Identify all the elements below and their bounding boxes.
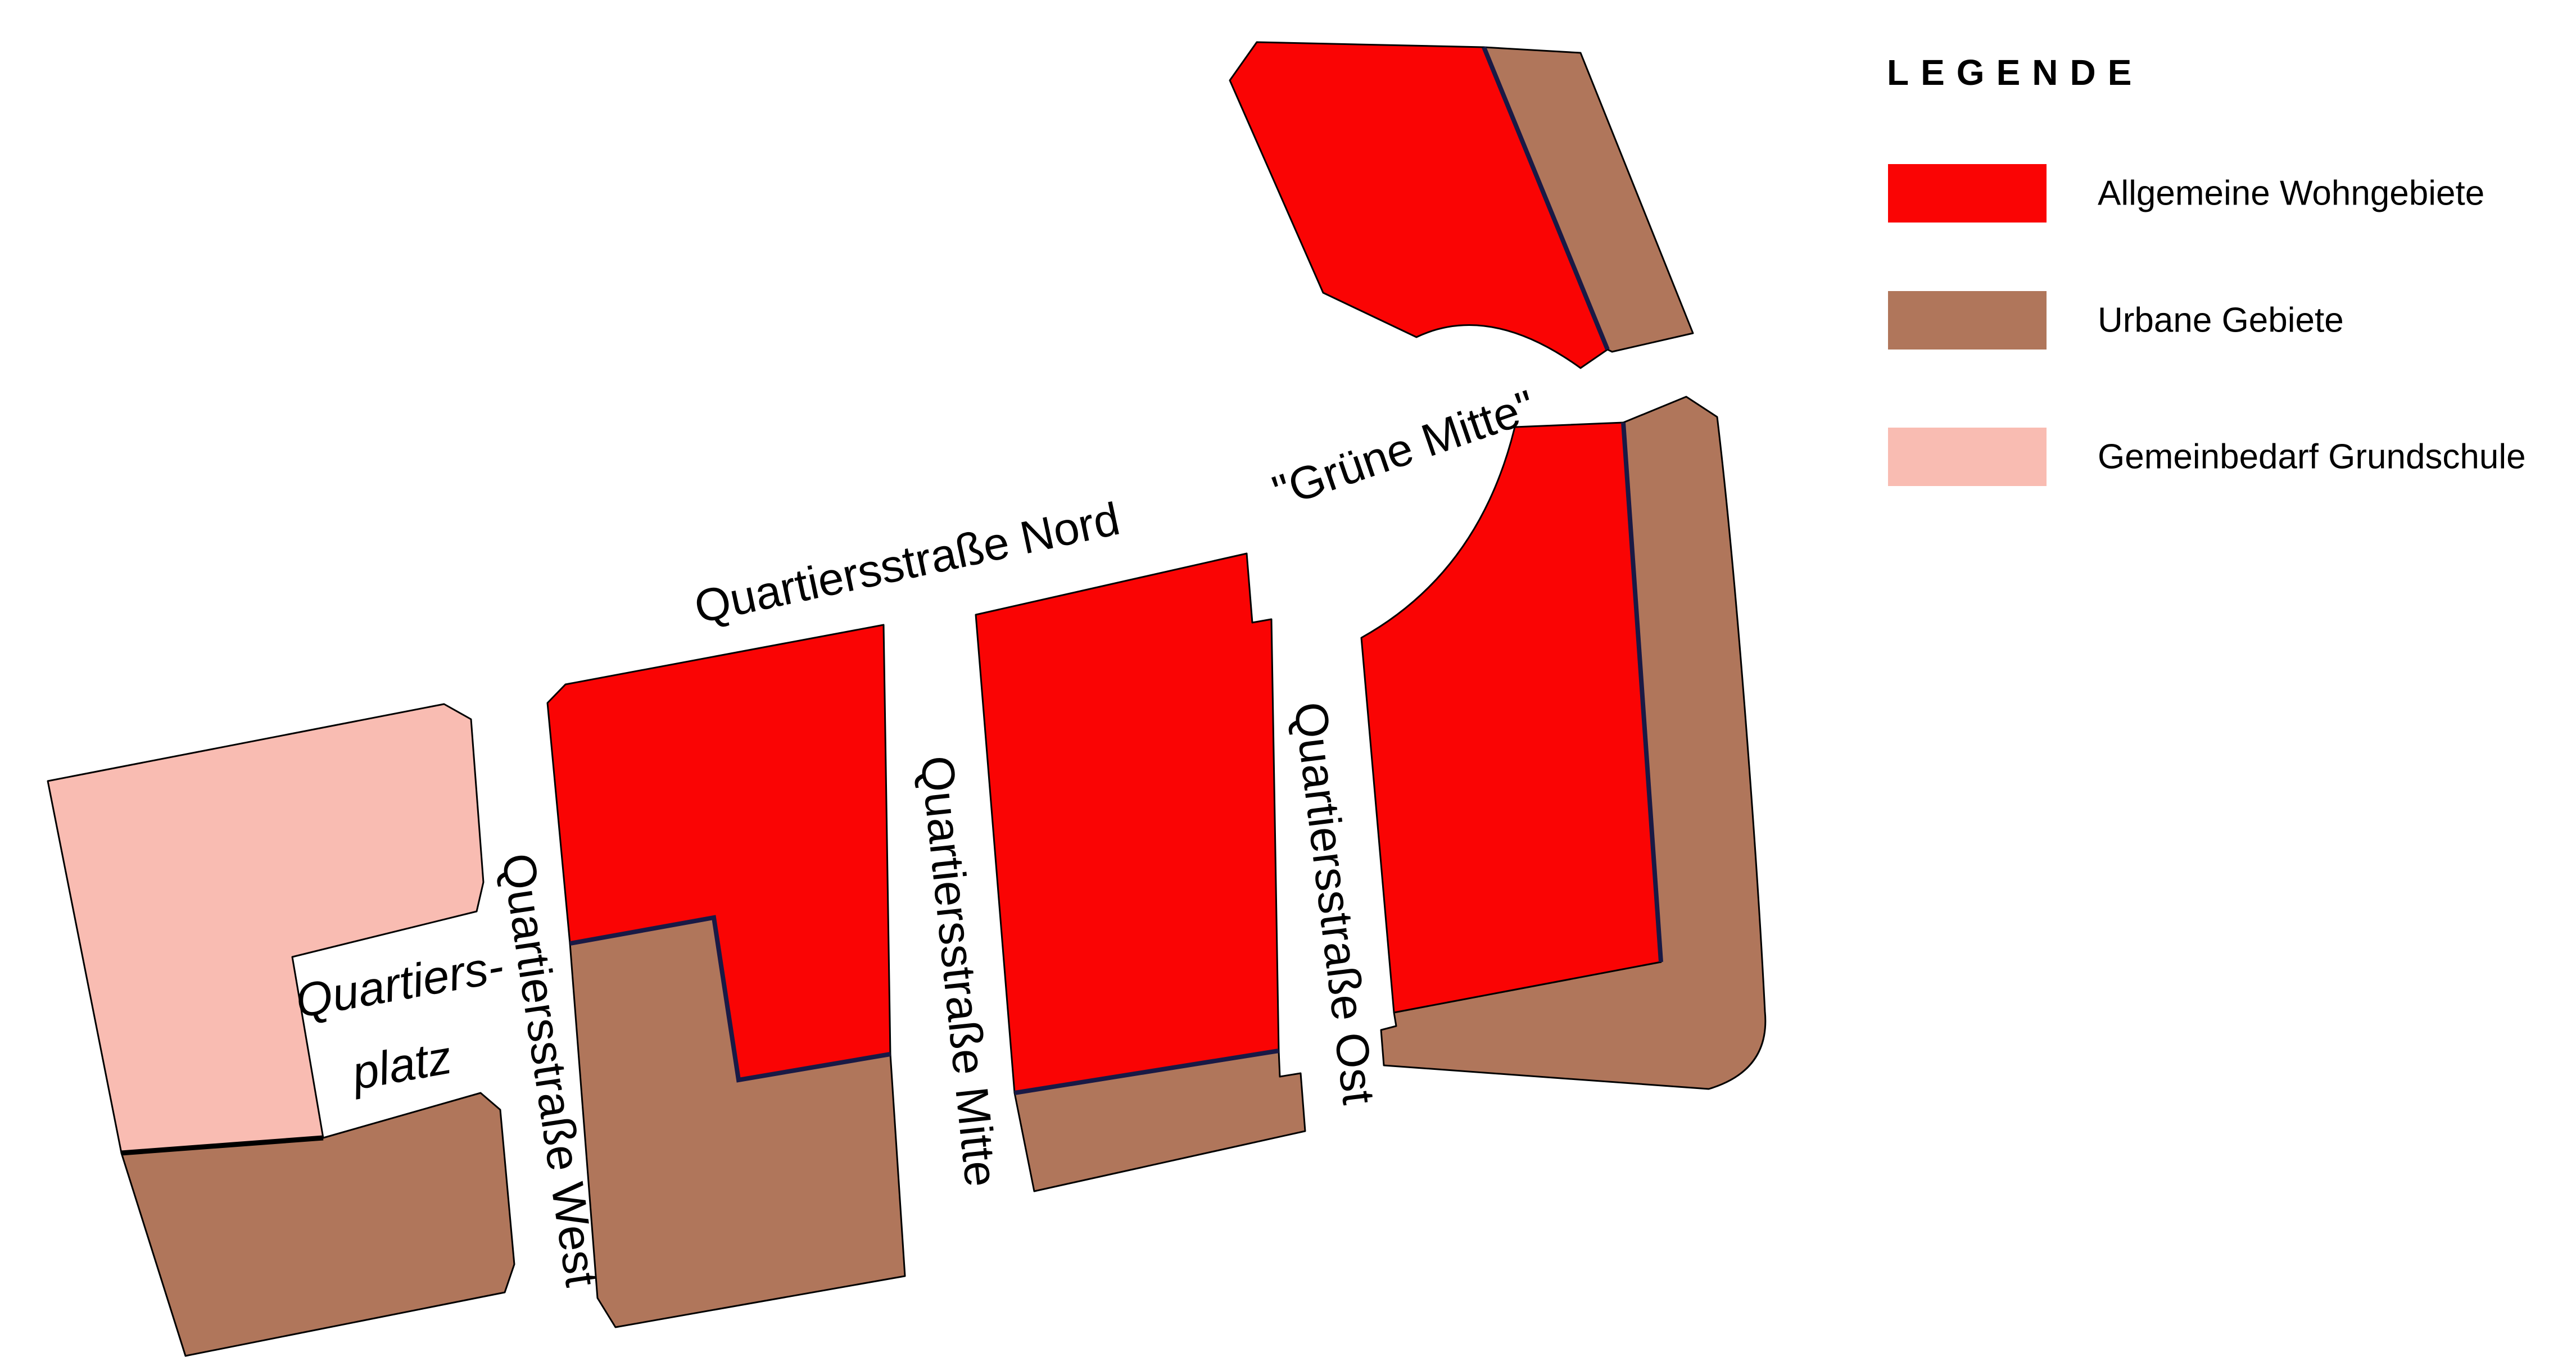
legend-title: LEGENDE [1887, 52, 2561, 93]
legend-item-label: Allgemeine Wohngebiete [2098, 174, 2484, 214]
legend-item-label: Urbane Gebiete [2098, 301, 2344, 341]
residential-swatch [1888, 164, 2047, 223]
place-label-quartiersplatz-line2: platz [346, 1031, 455, 1100]
residential-area-east [1361, 423, 1661, 1013]
school-swatch [1888, 428, 2047, 486]
plan-map: Quartiersstraße Nord Quartiersstraße Wes… [0, 0, 2576, 1357]
legend-item-label: Gemeinbedarf Grundschule [2098, 437, 2526, 477]
place-label-quartiersplatz-line1: Quartiers- [292, 940, 508, 1028]
urban-swatch [1888, 291, 2047, 350]
street-label-ost: Quartiersstraße Ost [1284, 699, 1384, 1107]
legend: LEGENDE Allgemeine Wohngebiete Urbane Ge… [1887, 52, 2561, 93]
residential-area-mitte [976, 553, 1279, 1093]
